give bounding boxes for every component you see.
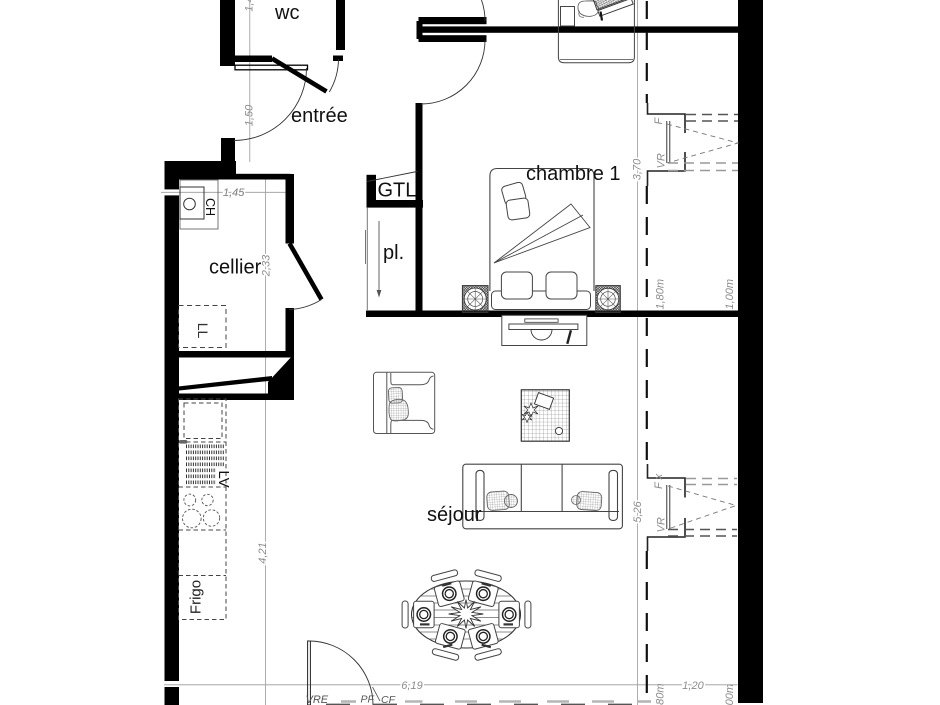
svg-text:GTL: GTL	[378, 180, 417, 202]
svg-text:6,19: 6,19	[401, 680, 422, 692]
svg-text:5,26: 5,26	[632, 500, 644, 522]
svg-text:Frigo: Frigo	[188, 580, 205, 614]
svg-text:séjour: séjour	[427, 504, 482, 526]
svg-text:VR: VR	[656, 153, 668, 168]
svg-text:cellier: cellier	[209, 257, 262, 279]
svg-text:1,80m: 1,80m	[655, 279, 667, 310]
svg-text:1,00m: 1,00m	[724, 684, 736, 705]
svg-text:LV: LV	[215, 470, 232, 487]
svg-text:4,21: 4,21	[257, 542, 269, 563]
svg-text:PF: PF	[361, 694, 375, 705]
svg-text:1,20: 1,20	[682, 680, 704, 692]
svg-text:VRE: VRE	[306, 694, 329, 705]
svg-text:wc: wc	[274, 2, 299, 24]
svg-text:pl.: pl.	[383, 242, 404, 264]
svg-text:F x: F x	[653, 473, 665, 489]
svg-text:CH: CH	[203, 198, 217, 216]
svg-text:VR: VR	[656, 517, 668, 532]
svg-text:entrée: entrée	[291, 105, 348, 127]
svg-text:1,45: 1,45	[244, 0, 256, 12]
svg-text:CF: CF	[381, 694, 396, 705]
svg-text:chambre 1: chambre 1	[526, 163, 621, 185]
svg-text:1,80m: 1,80m	[655, 683, 667, 705]
svg-text:1,45: 1,45	[223, 187, 245, 199]
svg-text:1,50: 1,50	[244, 104, 256, 126]
svg-text:1,00m: 1,00m	[724, 279, 736, 310]
svg-text:2,33: 2,33	[261, 254, 273, 277]
svg-text:3,70: 3,70	[632, 158, 644, 180]
svg-text:LL: LL	[195, 323, 211, 339]
